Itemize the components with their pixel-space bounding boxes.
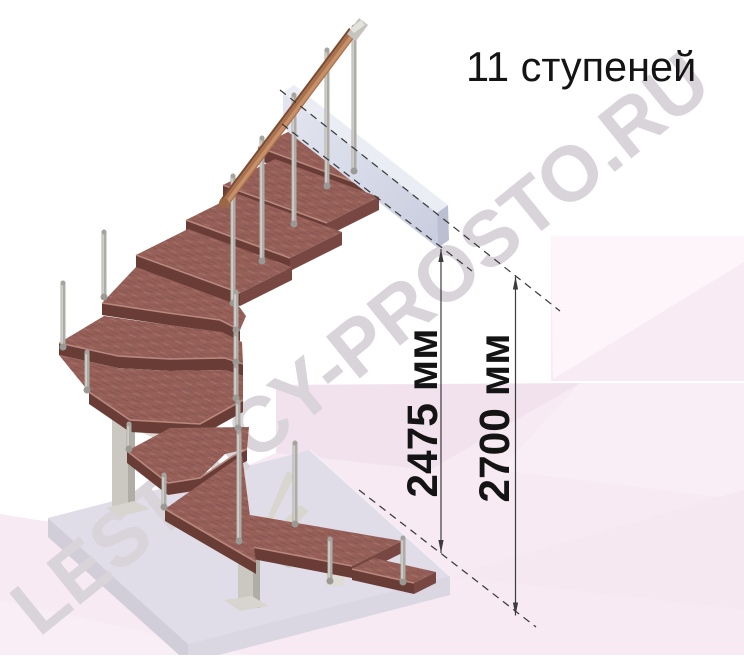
svg-text:2475 мм: 2475 мм: [400, 328, 447, 497]
svg-text:2700 мм: 2700 мм: [472, 333, 519, 502]
svg-text:11 ступеней: 11 ступеней: [466, 43, 696, 90]
